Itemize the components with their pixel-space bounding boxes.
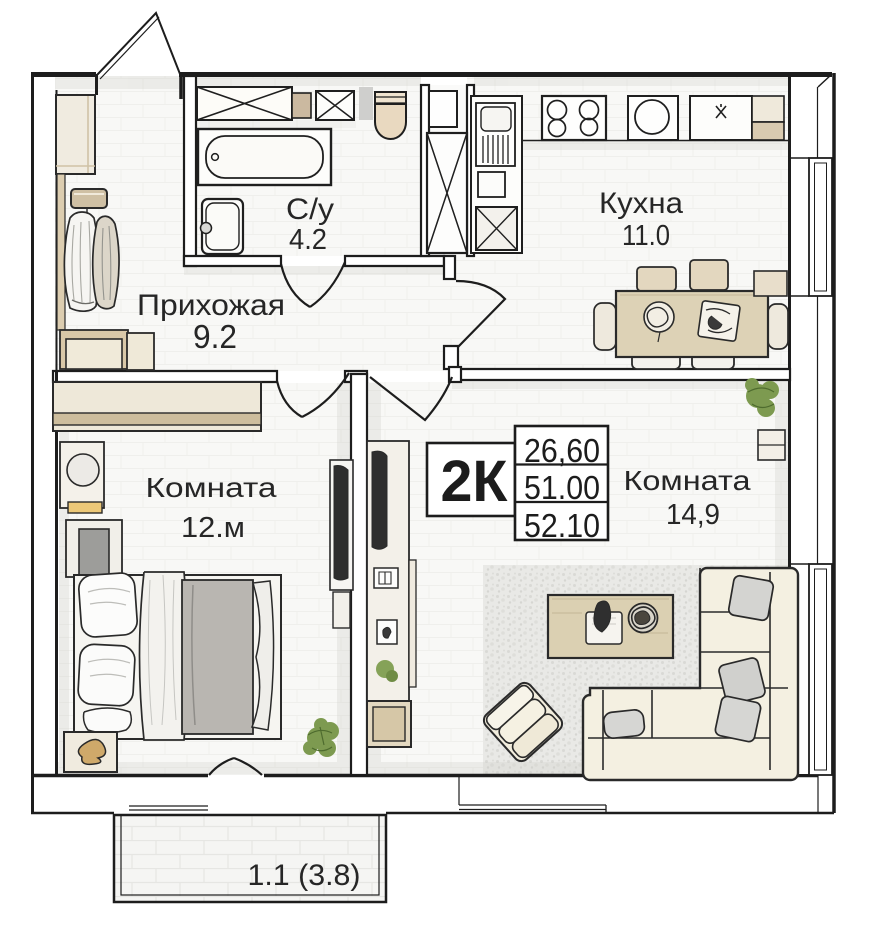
svg-text:52.10: 52.10 xyxy=(524,507,600,544)
svg-text:51.00: 51.00 xyxy=(524,469,600,506)
svg-text:2К: 2К xyxy=(441,449,509,514)
svg-text:9.2: 9.2 xyxy=(193,318,237,355)
svg-text:1.1 (3.8): 1.1 (3.8) xyxy=(248,859,361,892)
svg-text:26,60: 26,60 xyxy=(524,432,600,469)
svg-text:12.м: 12.м xyxy=(181,512,245,544)
svg-text:14,9: 14,9 xyxy=(666,499,720,531)
svg-text:4.2: 4.2 xyxy=(289,224,327,256)
svg-text:11.0: 11.0 xyxy=(622,220,670,252)
svg-text:С/у: С/у xyxy=(286,193,334,226)
svg-text:Комната: Комната xyxy=(146,472,278,503)
svg-text:Комната: Комната xyxy=(624,465,751,496)
svg-text:Кухна: Кухна xyxy=(599,187,683,220)
